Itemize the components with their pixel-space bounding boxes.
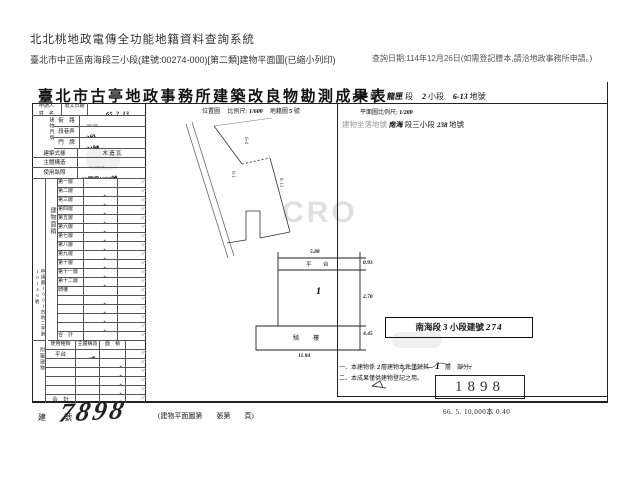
floor-label: 第十二層: [58, 278, 84, 286]
area-row: ㎡: [58, 305, 146, 314]
dim-lower-right: 4.45: [363, 331, 373, 337]
area-row: 第三層 ㎡: [58, 197, 146, 206]
structure-header: 主體構造: [76, 341, 100, 349]
unit-label: ㎡: [126, 368, 146, 376]
street-label: 街 路: [54, 116, 80, 126]
area-row: 第八層 ㎡: [58, 242, 146, 251]
arcade-label: 騎 樓: [293, 333, 323, 342]
number-label: 門 牌: [54, 138, 80, 148]
site-lot-line: 建物坐落地號 南海 段三小段 238 地號: [342, 119, 464, 130]
annex-use: 平台: [46, 350, 76, 358]
applicant-name-label: 姓 名: [39, 112, 54, 116]
section-hand: 龍匣: [386, 91, 403, 102]
floor-label: 第七層: [58, 233, 84, 241]
plan-scale-caption: 平面圖比例尺: 1/200: [360, 107, 413, 116]
floor-value: [84, 215, 118, 223]
building-area-vlabel: 建物面積: [48, 179, 58, 341]
cadastral-map-number: 5: [289, 109, 293, 115]
receive-date-value: 65. 2. 13: [105, 111, 129, 115]
area-row: ㎡: [58, 296, 146, 305]
note1-hand: 2: [376, 365, 380, 371]
unit-label: ㎡: [118, 269, 146, 277]
sheet-note: (建物平面圖第 張第 頁): [158, 411, 254, 421]
unit-label: ㎡: [126, 377, 146, 385]
unit-label: ㎡: [126, 359, 146, 367]
annex-area: [100, 377, 126, 385]
system-title: 北北桃地政電傳全功能地籍資料查詢系統: [30, 31, 255, 47]
unit-label: ㎡: [118, 215, 146, 223]
area-row: 第十層 ㎡: [58, 260, 146, 269]
annex-row: ㎡: [46, 377, 146, 386]
table-row: 主體構造 加強磚造: [32, 158, 146, 168]
district-label: 區: [370, 92, 378, 101]
map-scale-label: 比例尺:: [228, 109, 248, 115]
area-row: 第九層 ㎡: [58, 251, 146, 260]
scan-edge-line: [607, 82, 608, 103]
print-code: 66. 5. 10,000本 0.40: [443, 407, 510, 417]
unit-label: ㎡: [118, 197, 146, 205]
annex-row: ㎡: [46, 386, 146, 395]
floor-label: 第三層: [58, 197, 84, 205]
unit-label: ㎡: [118, 242, 146, 250]
unit-label: ㎡: [118, 287, 146, 295]
area-total-row: 合 計 88.71 ㎡: [58, 332, 146, 341]
floor-value: [84, 260, 118, 268]
structure-value: 加強磚造: [82, 165, 105, 167]
document-subtitle: 臺北市中正區南海段三小段(建號:00274-000)[第二類]建物平面圖(已縮小…: [30, 53, 336, 66]
section-label: 段: [405, 92, 413, 101]
floor-value: [84, 233, 118, 241]
floor-value: [84, 251, 118, 259]
side-note-column: 申請書(66)古地二字第10146號: [32, 179, 46, 341]
unit-label: ㎡: [126, 386, 146, 394]
note1-floor-number: 1: [434, 361, 440, 372]
floor-value: [84, 305, 118, 313]
applicant-label: 申請人: [39, 104, 54, 109]
area-row: 第四層 ㎡: [58, 206, 146, 215]
site-section-hand: 南海: [388, 120, 403, 130]
stamp-subsection-hand: 3: [442, 318, 449, 337]
area-row: 第二層 ㎡: [58, 188, 146, 197]
receive-date-label: 收文日期: [62, 103, 88, 115]
annex-area: [100, 386, 126, 394]
floor-label: 第二層: [58, 188, 84, 196]
annex-vlabel: 附屬建物: [34, 341, 46, 403]
section-building-number-stamp: 南海段 3 小段建號 274: [385, 317, 533, 338]
land-reference: 古亭 區 龍匣 段 2 小段 6-13 地號: [352, 91, 486, 102]
table-row: 門 牌 23號: [54, 138, 146, 149]
stamp-building-label: 小段建號: [450, 322, 484, 332]
floor-value: [84, 296, 118, 304]
license-label: 使用執照: [32, 168, 78, 178]
number-stamp: 1898: [435, 375, 525, 399]
unit-label: ㎡: [118, 233, 146, 241]
map-lot-label: 6-13: [278, 178, 283, 187]
area-row: 第一層 50.62 ㎡: [58, 179, 146, 188]
subsection-label: 小段: [428, 92, 444, 101]
area-row: ㎡: [58, 323, 146, 332]
district-hand: 古亭: [351, 91, 368, 102]
floor-label: 第四層: [58, 206, 84, 214]
annex-row: 平台 加強磚造 7.99 ㎡: [46, 350, 146, 359]
sheet-suffix: 號: [294, 109, 300, 115]
unit-label: ㎡: [118, 314, 146, 322]
dim-bottom: 11.94: [298, 353, 311, 359]
floor-value: [84, 323, 118, 331]
annex-area: [100, 368, 126, 376]
area-row: 第六層 ㎡: [58, 224, 146, 233]
plan-scale-value: 1/200: [399, 110, 413, 116]
floor-value: [84, 278, 118, 286]
street-value: 南海: [85, 122, 98, 126]
application-number-note: 申請書(66)古地二字第10146號: [34, 269, 46, 339]
plan-panel-border: [337, 103, 608, 397]
site-lot-suffix: 地號: [449, 120, 464, 129]
unit-label: ㎡: [118, 332, 146, 340]
query-date-note: 查詢日期:114年12月26日(如需登記謄本,請洽地政事務所申請。): [372, 53, 592, 64]
style-label: 建築式樣: [32, 149, 78, 157]
floor-label: 第十一層: [58, 269, 84, 277]
unit-label: ㎡: [118, 260, 146, 268]
floor-label: 第一層: [58, 179, 84, 187]
dim-mid-right: 2.70: [363, 294, 373, 300]
subsection-hand: 2: [421, 92, 426, 101]
area-row: 第七層 ㎡: [58, 233, 146, 242]
lane-value: 3段: [85, 132, 96, 137]
unit-label: ㎡: [118, 296, 146, 304]
table-row: 段巷弄 3段: [54, 127, 146, 138]
site-lot-number-hand: 238: [436, 121, 448, 129]
terrace-label: 平 台: [306, 260, 332, 268]
dim-top: 5.88: [310, 249, 320, 255]
lot-hand: 6-13: [452, 92, 468, 101]
unit-label: ㎡: [118, 278, 146, 286]
cadastral-map-label: 地籍圖: [270, 109, 288, 115]
note-line-1: 一、本建物係 2 層建物本件僅就其 1 層 部分。: [339, 361, 475, 372]
style-value: 木 造 瓦: [78, 149, 146, 157]
area-row: ㎡: [58, 314, 146, 323]
note1-post: 層 部分。: [445, 365, 475, 371]
lot-label: 地號: [470, 92, 486, 101]
table-row: 街 路 南海: [54, 116, 146, 127]
floor-label: 第十層: [58, 260, 84, 268]
note1-mid: 層建物本件僅就其: [381, 365, 429, 371]
unit-label: ㎡: [118, 188, 146, 196]
structure-label: 主體構造: [32, 158, 78, 167]
number-value: 23號: [85, 143, 99, 148]
map-lot-label: 6-4: [243, 137, 248, 144]
floor-label: 第六層: [58, 224, 84, 232]
floor-value: [84, 206, 118, 214]
site-lot-label: 建物坐落地號: [342, 120, 387, 129]
table-row: 申請人 姓 名 收文日期 65. 2. 13: [32, 103, 146, 116]
merged-cell: [32, 116, 54, 149]
lane-label: 段巷弄: [54, 127, 80, 137]
annex-row: ㎡: [46, 359, 146, 368]
use-type-header: 使用種類: [46, 341, 76, 349]
area-row: 第五層 ㎡: [58, 215, 146, 224]
annex-area: [100, 359, 126, 367]
note1-pre: 一、本建物係: [339, 365, 375, 371]
unit-label: ㎡: [118, 305, 146, 313]
plan-scale-label: 平面圖比例尺:: [360, 110, 398, 116]
dim-upper-right: 0.93: [363, 260, 373, 266]
area-row: 第十一層 ㎡: [58, 269, 146, 278]
annex-row: ㎡: [46, 368, 146, 377]
note-line-2: 二、本成果僅供建物登記之用。: [339, 373, 423, 382]
license-value: 66使字1058號: [80, 174, 117, 178]
annex-structure: 加強磚造: [76, 355, 96, 358]
unit-label: ㎡: [126, 350, 146, 358]
floor-label: 騎樓: [58, 287, 84, 295]
scanned-survey-form: CRO 臺北市古亭地政事務所建築改良物勘測成果表 古亭 區 龍匣 段 2 小段 …: [30, 80, 612, 460]
unit-label: ㎡: [118, 206, 146, 214]
stamp-building-number-hand: 274: [485, 318, 504, 337]
unit-label: ㎡: [118, 323, 146, 331]
site-subsection-label: 段三小段: [405, 120, 435, 129]
map-lot-label: 6-1: [230, 171, 235, 178]
table-row: 使用執照 66使字1058號: [32, 168, 146, 179]
unit-label: ㎡: [118, 251, 146, 259]
floor-value: [84, 242, 118, 250]
annex-header-row: 使用種類 主體構造 面 積: [46, 341, 146, 350]
floor-label: 第八層: [58, 242, 84, 250]
area-row: 騎樓 38.09 ㎡: [58, 287, 146, 296]
floor-label: 第九層: [58, 251, 84, 259]
unit-label: ㎡: [118, 224, 146, 232]
floor-label: 第五層: [58, 215, 84, 223]
floor-value: [84, 314, 118, 322]
unit-label: ㎡: [118, 179, 146, 187]
area-row: 第十二層 ㎡: [58, 278, 146, 287]
floor-value: [84, 197, 118, 205]
floor-value: [84, 188, 118, 196]
floor-value: [84, 269, 118, 277]
location-map-label: 位置圖: [202, 109, 220, 115]
map-scale-value: 1/600: [248, 109, 262, 115]
total-label: 合 計: [58, 332, 84, 340]
area-header: 面 積: [100, 341, 126, 349]
location-map-caption: 位置圖 比例尺: 1/600 地籍圖 5 號: [202, 106, 300, 115]
floor-value: [84, 224, 118, 232]
table-row: 建築式樣 木 造 瓦: [32, 149, 146, 158]
stamp-section-label: 南海段: [416, 322, 442, 332]
building-number-hand: 7898: [57, 394, 130, 428]
